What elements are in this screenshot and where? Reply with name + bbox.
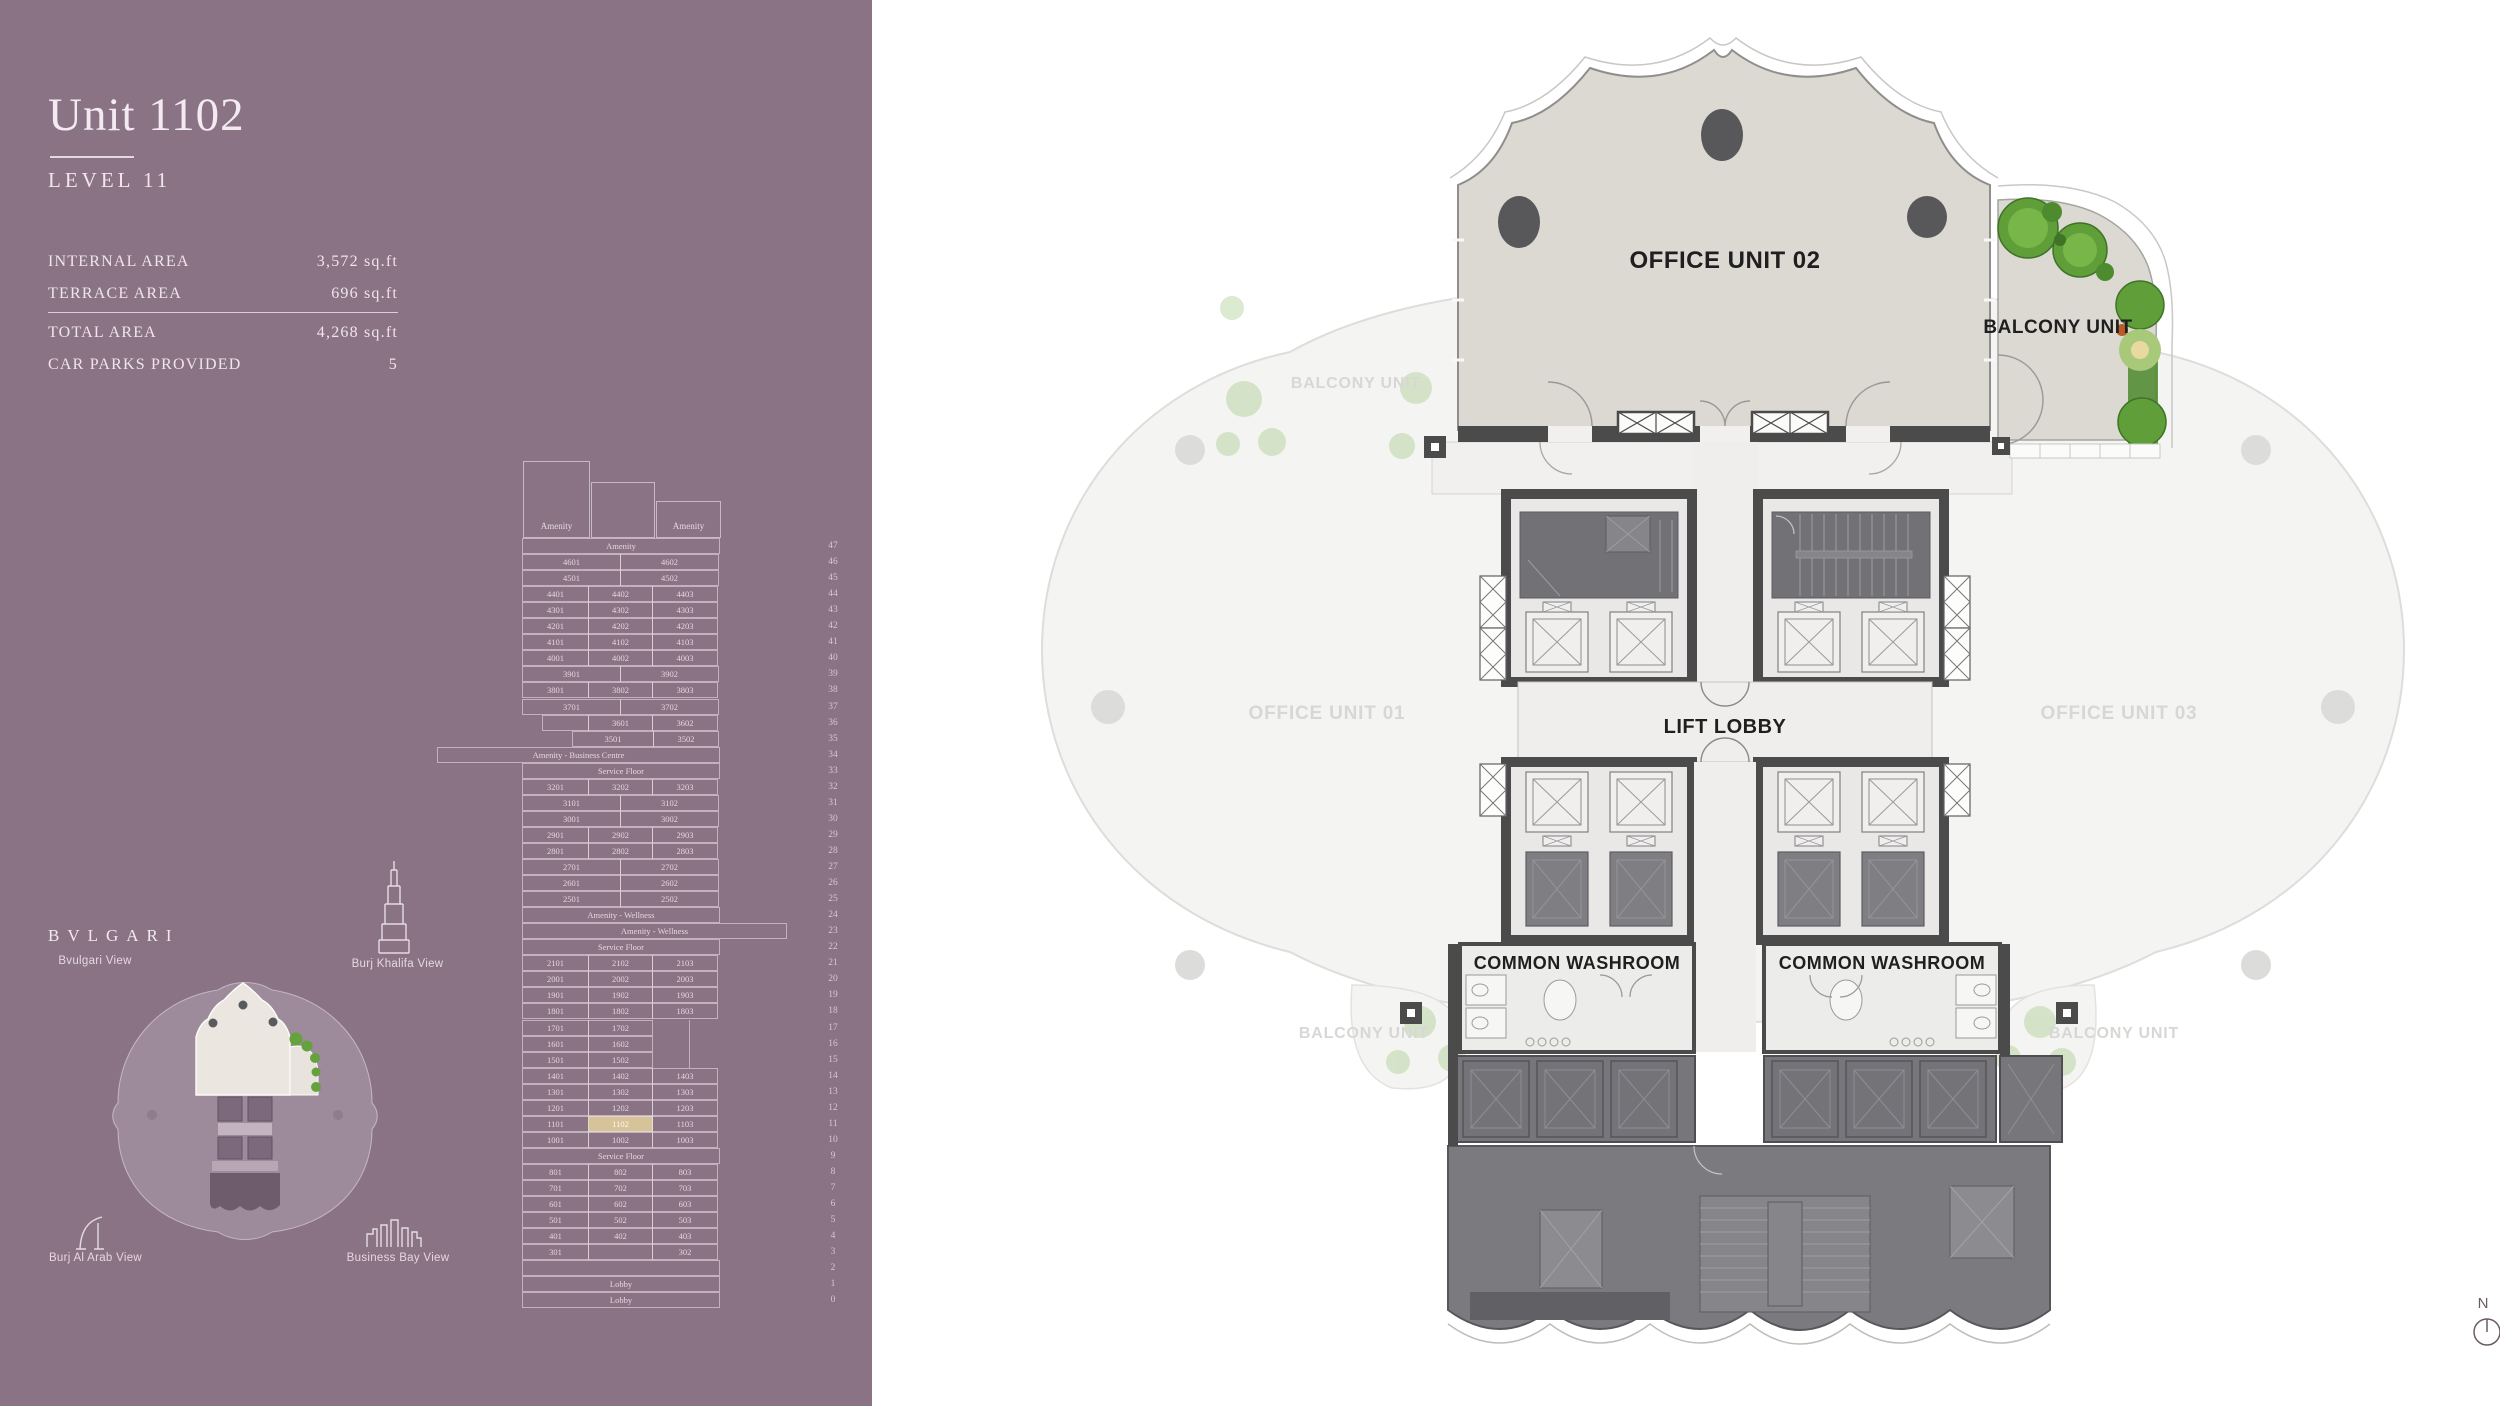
- compass-north-label: N: [2478, 1295, 2489, 1312]
- lift-lobby-label: LIFT LOBBY: [1664, 716, 1787, 738]
- office-unit-01-label: OFFICE UNIT 01: [1249, 703, 1406, 724]
- common-washroom-left-label: COMMON WASHROOM: [1474, 953, 1680, 973]
- core-corridor-upper: [1692, 442, 1758, 682]
- stair-room-left: [1520, 512, 1678, 598]
- balcony-unit-faded-label: BALCONY UNIT: [2049, 1025, 2179, 1042]
- floor-plan: OFFICE UNIT 01 OFFICE UNIT 03 BALCONY UN…: [0, 0, 2500, 1406]
- balcony-unit-faded-label: BALCONY UNIT: [1299, 1025, 1429, 1042]
- common-washroom-right-label: COMMON WASHROOM: [1779, 953, 1985, 973]
- stair-room-right: [1772, 512, 1930, 598]
- office-unit-03-label: OFFICE UNIT 03: [2041, 703, 2198, 724]
- compass-icon: N: [2474, 1295, 2500, 1345]
- balcony-unit-faded-label: BALCONY UNIT: [1291, 375, 1421, 392]
- service-area: [1448, 1146, 2050, 1344]
- balcony-unit-label: BALCONY UNIT: [1983, 317, 2132, 338]
- office-unit-02-label: OFFICE UNIT 02: [1629, 247, 1820, 274]
- core-corridor-lower: [1694, 762, 1756, 1052]
- office-unit-02-area: OFFICE UNIT 02: [1450, 38, 1998, 442]
- balcony-unit-area: BALCONY UNIT: [1983, 185, 2172, 458]
